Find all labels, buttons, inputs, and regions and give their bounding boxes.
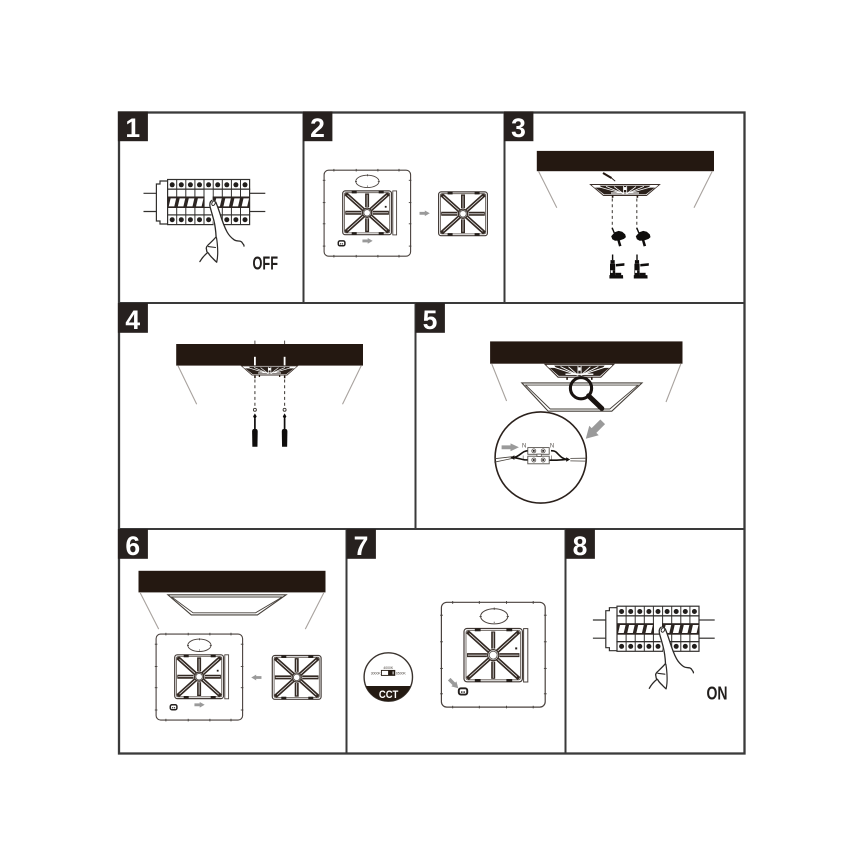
svg-text:8: 8 (573, 531, 588, 561)
svg-text:CCT: CCT (379, 689, 399, 701)
svg-text:6: 6 (125, 531, 140, 561)
svg-text:2: 2 (310, 113, 325, 143)
svg-text:4: 4 (125, 305, 140, 335)
svg-text:ON: ON (707, 683, 728, 703)
svg-text:1: 1 (125, 113, 140, 143)
svg-text:OFF: OFF (253, 253, 279, 273)
svg-text:7: 7 (354, 531, 369, 561)
svg-text:N: N (550, 443, 554, 449)
svg-text:4000K: 4000K (383, 666, 394, 670)
svg-text:5: 5 (423, 305, 438, 335)
svg-text:N: N (522, 443, 526, 449)
svg-text:6500K: 6500K (396, 672, 407, 676)
svg-text:3: 3 (511, 113, 526, 143)
svg-text:3000K: 3000K (371, 672, 382, 676)
